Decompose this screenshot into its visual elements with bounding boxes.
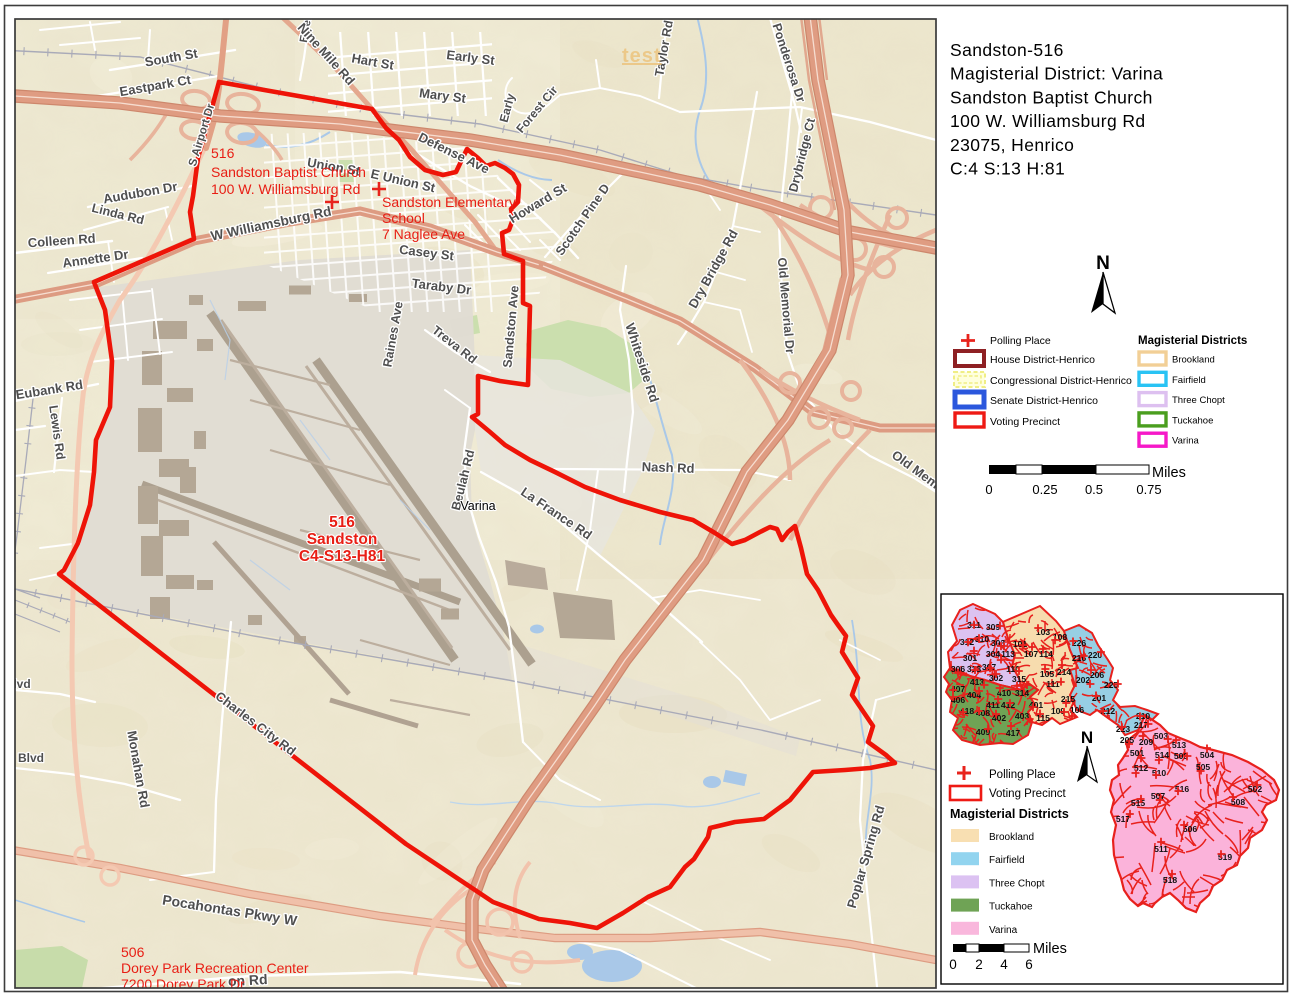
- svg-text:417: 417: [1006, 728, 1021, 738]
- svg-text:501: 501: [1130, 748, 1145, 758]
- svg-text:217: 217: [1134, 720, 1149, 730]
- svg-text:test: test: [622, 45, 662, 67]
- svg-text:301: 301: [963, 653, 978, 663]
- svg-text:Sandston Baptist Church: Sandston Baptist Church: [950, 87, 1153, 107]
- svg-text:23075, Henrico: 23075, Henrico: [950, 135, 1074, 155]
- svg-text:4: 4: [1000, 957, 1008, 972]
- svg-text:516: 516: [329, 514, 355, 531]
- svg-text:114: 114: [1039, 649, 1053, 659]
- svg-text:7 Naglee Ave: 7 Naglee Ave: [382, 226, 465, 242]
- svg-text:Magisterial District: Varina: Magisterial District: Varina: [950, 64, 1163, 84]
- svg-text:506: 506: [121, 944, 145, 960]
- svg-text:226: 226: [1072, 638, 1087, 648]
- svg-text:516: 516: [211, 145, 235, 161]
- svg-text:513: 513: [1172, 740, 1187, 750]
- svg-text:Varina: Varina: [989, 925, 1018, 936]
- svg-text:lvd: lvd: [13, 677, 30, 691]
- svg-text:517: 517: [1116, 814, 1131, 824]
- svg-text:Sandston Baptist Church: Sandston Baptist Church: [211, 164, 366, 180]
- svg-text:209: 209: [1139, 737, 1154, 747]
- svg-text:214: 214: [1057, 667, 1072, 677]
- svg-text:0.25: 0.25: [1032, 482, 1057, 497]
- svg-text:225: 225: [1104, 680, 1119, 690]
- svg-text:2: 2: [975, 957, 983, 972]
- svg-text:0: 0: [985, 482, 992, 497]
- svg-text:Dorey Park Recreation Center: Dorey Park Recreation Center: [121, 960, 309, 976]
- svg-text:Polling Place: Polling Place: [990, 335, 1051, 347]
- svg-text:Three Chopt: Three Chopt: [989, 878, 1045, 889]
- svg-text:0.5: 0.5: [1085, 482, 1103, 497]
- svg-text:310: 310: [975, 634, 990, 644]
- svg-text:412: 412: [1001, 700, 1016, 710]
- svg-text:Three Chopt: Three Chopt: [1172, 395, 1225, 406]
- svg-text:110: 110: [1006, 664, 1020, 674]
- svg-text:315: 315: [1012, 674, 1027, 684]
- svg-text:514: 514: [1155, 750, 1170, 760]
- svg-text:408: 408: [976, 708, 991, 718]
- svg-text:Sandston-516: Sandston-516: [950, 40, 1064, 60]
- svg-text:Tuckahoe: Tuckahoe: [1172, 415, 1213, 426]
- svg-text:Varina: Varina: [1172, 436, 1199, 447]
- svg-text:410: 410: [997, 688, 1012, 698]
- svg-text:Sandston: Sandston: [307, 531, 378, 548]
- svg-text:401: 401: [1029, 700, 1044, 710]
- svg-text:N: N: [1096, 253, 1110, 274]
- svg-text:C4-S13-H81: C4-S13-H81: [299, 548, 386, 565]
- svg-text:201: 201: [1092, 693, 1107, 703]
- svg-text:School: School: [382, 210, 425, 226]
- svg-text:516: 516: [1175, 784, 1190, 794]
- svg-text:510: 510: [1152, 768, 1167, 778]
- svg-text:Nash Rd: Nash Rd: [642, 459, 695, 476]
- svg-text:Blvd: Blvd: [18, 751, 44, 765]
- svg-text:Miles: Miles: [1033, 941, 1067, 957]
- svg-text:Voting Precinct: Voting Precinct: [990, 416, 1060, 428]
- svg-text:Polling Place: Polling Place: [989, 769, 1055, 781]
- svg-text:206: 206: [1090, 670, 1105, 680]
- svg-text:0.75: 0.75: [1136, 482, 1161, 497]
- svg-text:Magisterial Districts: Magisterial Districts: [1138, 335, 1247, 347]
- svg-text:N: N: [1081, 728, 1093, 747]
- svg-text:0: 0: [949, 957, 957, 972]
- svg-text:113: 113: [1001, 649, 1015, 659]
- svg-text:111: 111: [1046, 679, 1060, 689]
- svg-text:Senate District-Henrico: Senate District-Henrico: [990, 395, 1098, 407]
- svg-text:Brookland: Brookland: [989, 832, 1034, 843]
- svg-text:Voting Precinct: Voting Precinct: [989, 788, 1067, 800]
- svg-text:100 W. Williamsburg Rd: 100 W. Williamsburg Rd: [211, 181, 360, 197]
- svg-text:309: 309: [986, 622, 1001, 632]
- svg-text:518: 518: [1163, 875, 1178, 885]
- svg-text:100 W. Williamsburg Rd: 100 W. Williamsburg Rd: [950, 111, 1146, 131]
- svg-text:C:4 S:13 H:81: C:4 S:13 H:81: [950, 159, 1065, 179]
- svg-text:101: 101: [1013, 639, 1028, 649]
- svg-text:105: 105: [1040, 669, 1055, 679]
- svg-text:Miles: Miles: [1152, 465, 1186, 481]
- svg-text:418: 418: [960, 706, 975, 716]
- svg-text:Varina: Varina: [460, 499, 495, 513]
- svg-text:Congressional District-Henrico: Congressional District-Henrico: [990, 375, 1132, 387]
- svg-text:Fairfield: Fairfield: [989, 855, 1025, 866]
- svg-text:House District-Henrico: House District-Henrico: [990, 354, 1095, 366]
- svg-text:304: 304: [986, 649, 1001, 659]
- svg-text:Sandston Elementary: Sandston Elementary: [382, 194, 516, 210]
- svg-text:6: 6: [1025, 957, 1033, 972]
- svg-text:223: 223: [1116, 724, 1131, 734]
- svg-text:Tuckahoe: Tuckahoe: [989, 902, 1033, 913]
- svg-text:Brookland: Brookland: [1172, 355, 1215, 366]
- svg-text:Magisterial Districts: Magisterial Districts: [950, 807, 1069, 821]
- svg-text:Fairfield: Fairfield: [1172, 375, 1206, 386]
